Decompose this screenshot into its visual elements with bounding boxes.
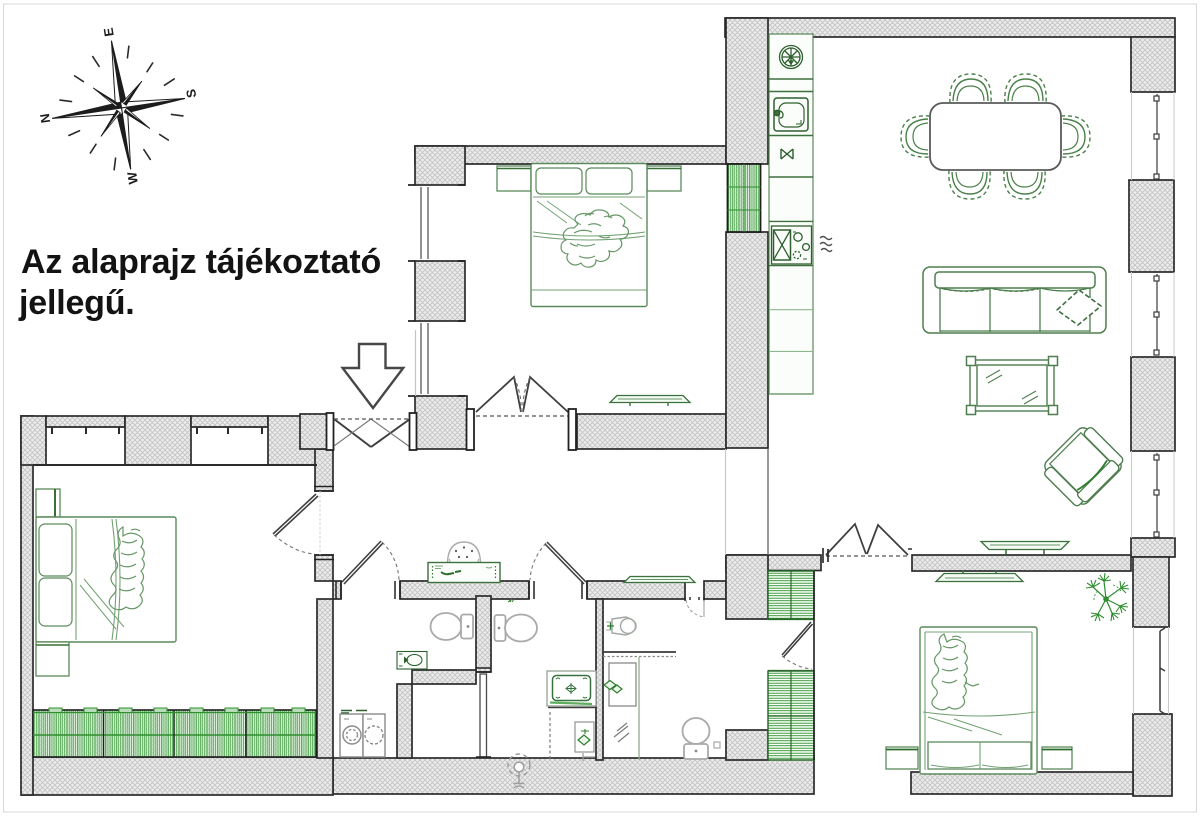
svg-text:Az alaprajz tájékoztató: Az alaprajz tájékoztató bbox=[21, 243, 381, 281]
svg-text:jellegű.: jellegű. bbox=[18, 284, 135, 322]
svg-text:W: W bbox=[124, 170, 141, 185]
svg-text:S: S bbox=[183, 88, 199, 99]
svg-text:N: N bbox=[37, 113, 53, 125]
svg-text:E: E bbox=[101, 26, 117, 37]
